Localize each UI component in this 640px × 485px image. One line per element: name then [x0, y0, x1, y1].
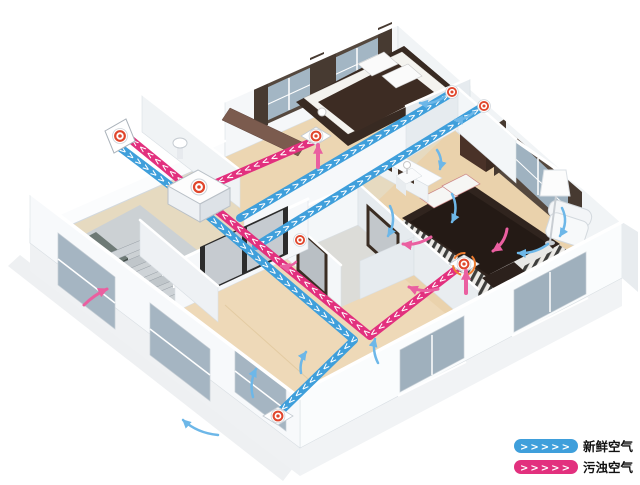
sink-basin — [173, 138, 187, 148]
unit-fan-icon — [197, 185, 201, 189]
legend-exhaust-chevrons-icon: >>>>> — [520, 463, 572, 474]
bedroom2-supply-vent — [478, 100, 491, 113]
ventilation-diagram-stage: { "legend": { "items": [ {"id":"fresh-ai… — [0, 0, 640, 485]
vent-dot-icon — [462, 262, 465, 265]
vent-dot-icon — [118, 134, 122, 138]
legend-fresh-chevrons-icon: >>>>> — [520, 442, 572, 453]
bathroom-extract-vent — [294, 234, 307, 247]
vent-dot-icon — [314, 134, 317, 137]
legend: >>>>> 新鲜空气 >>>>> 污浊空气 — [514, 439, 634, 475]
outdoor-intake-exhaust-vent — [105, 119, 135, 153]
vent-dot-icon — [450, 90, 453, 93]
vent-dot-icon — [298, 238, 301, 241]
vent-dot-icon — [276, 414, 279, 417]
east-corner-face — [622, 222, 638, 292]
vent-dot-icon — [482, 104, 485, 107]
legend-exhaust-label: 污浊空气 — [583, 460, 634, 475]
legend-fresh-label: 新鲜空气 — [583, 439, 634, 454]
floor-lamp-shade — [540, 170, 570, 196]
isometric-house-illustration: >>>>>>>>>>>>>>>>>>>>>>>>>>>>>>>>>>>>>>>>… — [0, 0, 640, 485]
table-lamp — [404, 162, 411, 169]
table-lamp — [318, 108, 326, 116]
bedroom1-supply-vent — [446, 86, 459, 99]
